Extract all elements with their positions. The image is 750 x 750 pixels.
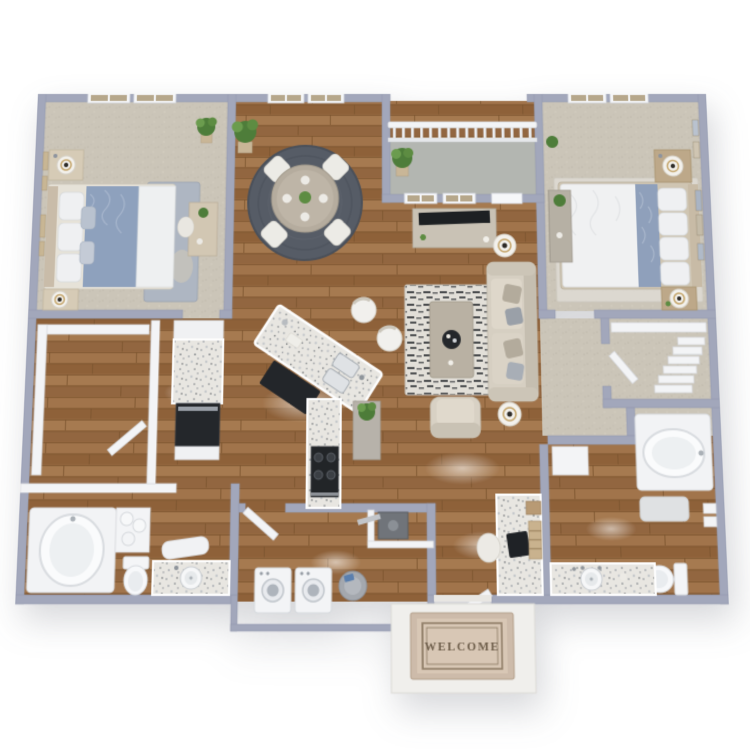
floor-lamp-south [498,402,521,426]
kitchen-south-run [307,399,341,508]
rolled-towel [122,532,135,545]
balcony-door [492,193,523,203]
rolled-towel [120,512,133,525]
exterior-wall-bottom-left [15,595,231,604]
armchair-back [430,423,480,438]
place-setting [301,176,310,185]
wall-bedroom2-bottom-stub [539,310,556,318]
bathtub-1 [26,508,116,593]
desk-chair [177,217,194,238]
sofa [487,262,539,401]
media-console [413,209,497,248]
sofa-armrest [487,262,536,275]
linen-closet [552,447,588,475]
bed-1 [44,184,176,289]
wall-dining-balcony [382,94,390,203]
wall-bathroom1-north [20,484,176,493]
entry-landing: WELCOME [391,604,536,693]
bedroom2-console-desk [548,190,572,262]
desk-chair [477,533,501,562]
place-setting [300,212,309,221]
burner [327,453,335,462]
dining-table [271,165,339,232]
washer [254,568,291,613]
railing-top-rail [388,122,537,128]
wall-tub-alcove [626,408,635,436]
blue-runner [635,184,661,287]
pillow [658,213,687,236]
throw-pillow [504,307,523,326]
pillow [59,192,84,220]
tv [419,210,491,225]
kitchen-console-table [353,401,380,459]
wall-closet2-bottom [603,399,720,408]
welcome-mat: WELCOME [411,613,515,679]
blue-duvet [83,186,139,287]
accent-pillow [81,207,96,230]
railing-bottom-rail [388,138,537,142]
nightstand-north [48,150,84,180]
pillow [56,254,82,282]
wall-bath1-laundry [229,484,239,595]
floor-plan-svg: WELCOME [11,94,733,702]
white-duvet [560,184,641,287]
bed-2 [558,182,702,289]
laptop [506,531,531,558]
nightstand-north-2 [654,150,692,182]
door-threshold [434,595,492,602]
sofa-armrest [488,387,538,401]
pillow [58,223,84,251]
wall-bathroom2-north [548,436,636,445]
closet-shelf-top [38,325,150,334]
tall-cabinet [174,321,224,340]
floor-lamp-north [493,234,516,257]
closet-shelf-top [611,323,706,332]
floor-plan-3d-scene: WELCOME [11,94,733,702]
oven-handle [178,407,218,411]
armchair-cushion [437,399,475,425]
coffee-table [430,302,474,378]
pillow [658,188,687,210]
towel-cabinet [115,508,150,552]
vanity-2 [551,563,656,594]
wall-laundry-entry [427,503,436,594]
throw-pillow [506,361,525,381]
wall-closet2-left-upper [601,318,610,343]
centerpiece [299,191,311,203]
floor-plan-stage: WELCOME [0,0,750,750]
burner [314,453,322,462]
bathtub-2 [635,414,713,490]
storage-box [526,501,541,514]
ladder-shelf [528,521,541,559]
living-room-windows [404,193,522,203]
white-blanket [136,186,176,287]
pillow [659,237,688,260]
throw-pillow [502,283,522,304]
nightstand-south-2 [661,287,697,310]
kitchen-west-run [171,321,224,460]
dryer [295,568,332,613]
wall-bedroom1-bottom-stub [220,310,233,318]
place-setting [319,194,328,203]
armchair [430,397,481,438]
toilet-tank [674,563,688,594]
accent-pillow [79,241,94,264]
bath-mat [640,497,689,521]
floor-light-glare [424,452,500,485]
rolled-towel [133,519,146,532]
wall-bedroom2-bottom [594,310,716,318]
pillow [660,262,690,285]
granite-counter [172,339,223,403]
nightstand-south [43,289,79,310]
burner [314,471,322,480]
burner [327,471,335,480]
wall-bedroom1-bottom [28,310,183,318]
exterior-wall-bottom-right [492,595,729,604]
welcome-mat-text: WELCOME [424,640,500,654]
toilet-1 [122,557,149,595]
oven-door-handle [311,492,338,495]
laundry-basket [339,571,367,600]
base-cabinet [175,447,219,460]
